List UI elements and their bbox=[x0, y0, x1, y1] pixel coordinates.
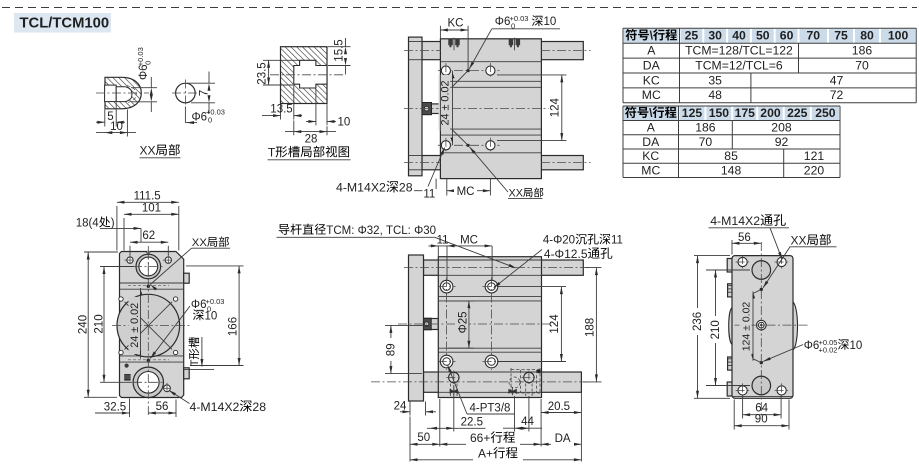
svg-text:Φ6: Φ6 bbox=[192, 111, 208, 123]
svg-text:24 ± 0.02: 24 ± 0.02 bbox=[440, 81, 452, 126]
svg-text:22.5: 22.5 bbox=[461, 416, 483, 428]
svg-text:11: 11 bbox=[611, 235, 623, 247]
svg-text:70: 70 bbox=[855, 58, 869, 72]
svg-text:4-Φ12.5: 4-Φ12.5 bbox=[544, 247, 588, 261]
svg-text:28: 28 bbox=[399, 181, 413, 195]
svg-text:XX: XX bbox=[140, 144, 156, 158]
svg-text:250: 250 bbox=[815, 106, 836, 120]
svg-text:4-M14X2: 4-M14X2 bbox=[336, 181, 386, 195]
svg-text:0: 0 bbox=[208, 116, 212, 125]
svg-text:DA: DA bbox=[642, 135, 660, 149]
svg-text:208: 208 bbox=[771, 121, 792, 135]
svg-text:10: 10 bbox=[338, 117, 351, 129]
svg-text:Φ6: Φ6 bbox=[191, 299, 207, 311]
svg-text:4-M14X2: 4-M14X2 bbox=[710, 214, 760, 228]
svg-text:A+: A+ bbox=[478, 446, 493, 460]
svg-text:18(4: 18(4 bbox=[76, 217, 100, 229]
svg-text:47: 47 bbox=[830, 73, 844, 87]
svg-text:): ) bbox=[111, 217, 115, 229]
svg-text:240: 240 bbox=[77, 315, 89, 334]
svg-text:TCM=128/TCL=122: TCM=128/TCL=122 bbox=[685, 44, 793, 58]
svg-text:200: 200 bbox=[760, 106, 781, 120]
svg-text:10: 10 bbox=[850, 340, 863, 352]
svg-text:101: 101 bbox=[142, 202, 161, 214]
svg-text:A: A bbox=[647, 44, 656, 58]
svg-text:TCM=12/TCL=6: TCM=12/TCL=6 bbox=[695, 58, 783, 72]
svg-text:225: 225 bbox=[787, 106, 808, 120]
svg-text:24: 24 bbox=[394, 400, 407, 412]
svg-text:4-PT3/8: 4-PT3/8 bbox=[470, 402, 511, 414]
svg-text:MC: MC bbox=[460, 235, 478, 247]
svg-text:150: 150 bbox=[709, 106, 730, 120]
svg-text:DA: DA bbox=[643, 58, 661, 72]
svg-text:28: 28 bbox=[252, 400, 266, 414]
svg-text:MC: MC bbox=[457, 186, 475, 198]
svg-text:TCL/TCM100: TCL/TCM100 bbox=[20, 16, 110, 32]
svg-text:10: 10 bbox=[205, 310, 218, 322]
svg-text:24 ± 0.02: 24 ± 0.02 bbox=[129, 303, 141, 348]
svg-text:Φ6: Φ6 bbox=[804, 340, 820, 352]
svg-text:T: T bbox=[189, 359, 201, 366]
svg-text:DA: DA bbox=[555, 433, 571, 445]
svg-text:44: 44 bbox=[521, 416, 534, 428]
svg-text:28: 28 bbox=[305, 133, 318, 145]
svg-text:125: 125 bbox=[682, 106, 703, 120]
svg-text:70: 70 bbox=[699, 135, 713, 149]
svg-text:35: 35 bbox=[708, 73, 722, 87]
svg-text:50: 50 bbox=[417, 432, 430, 444]
svg-text:111.5: 111.5 bbox=[134, 190, 161, 202]
svg-text:XX: XX bbox=[791, 233, 807, 247]
svg-text:T: T bbox=[268, 145, 276, 159]
svg-text:70: 70 bbox=[807, 28, 821, 42]
svg-text:75: 75 bbox=[834, 28, 848, 42]
svg-text:60: 60 bbox=[780, 28, 794, 42]
svg-text:175: 175 bbox=[735, 106, 756, 120]
svg-text:92: 92 bbox=[775, 135, 789, 149]
svg-text:40: 40 bbox=[732, 28, 746, 42]
svg-text:KC: KC bbox=[642, 149, 659, 163]
svg-text:4-Φ20: 4-Φ20 bbox=[543, 235, 575, 247]
svg-text:7: 7 bbox=[199, 90, 211, 96]
svg-text:MC: MC bbox=[642, 88, 661, 102]
svg-text:20.5: 20.5 bbox=[548, 401, 570, 413]
svg-text:90: 90 bbox=[755, 414, 768, 426]
svg-text:11: 11 bbox=[437, 235, 449, 247]
svg-text:XX: XX bbox=[192, 237, 208, 249]
svg-text:56: 56 bbox=[156, 401, 169, 413]
svg-text:186: 186 bbox=[695, 121, 716, 135]
svg-text:210: 210 bbox=[93, 314, 105, 333]
svg-text:32.5: 32.5 bbox=[104, 401, 126, 413]
svg-text:121: 121 bbox=[804, 149, 825, 163]
svg-text:TCM: Φ32, TCL: Φ30: TCM: Φ32, TCL: Φ30 bbox=[326, 225, 436, 237]
svg-text:15.5: 15.5 bbox=[334, 39, 346, 61]
svg-text:56: 56 bbox=[738, 232, 751, 244]
svg-text:124: 124 bbox=[550, 98, 562, 118]
svg-text:124 ± 0.02: 124 ± 0.02 bbox=[741, 302, 753, 352]
svg-text:186: 186 bbox=[852, 44, 873, 58]
svg-text:210: 210 bbox=[710, 320, 722, 339]
svg-text:48: 48 bbox=[708, 88, 722, 102]
svg-text:4-M14X2: 4-M14X2 bbox=[190, 400, 240, 414]
svg-text:62: 62 bbox=[142, 230, 155, 242]
svg-text:25: 25 bbox=[685, 28, 699, 42]
svg-text:148: 148 bbox=[721, 163, 742, 177]
svg-text:23.5: 23.5 bbox=[257, 62, 269, 84]
svg-text:10: 10 bbox=[544, 16, 557, 28]
svg-text:Φ6: Φ6 bbox=[495, 16, 511, 28]
svg-text:66+: 66+ bbox=[470, 431, 490, 445]
svg-text:11: 11 bbox=[423, 188, 435, 200]
svg-text:13.5: 13.5 bbox=[270, 103, 292, 115]
svg-text:89: 89 bbox=[386, 343, 398, 356]
svg-text:124: 124 bbox=[549, 314, 561, 334]
svg-text:+0.02: +0.02 bbox=[819, 345, 838, 354]
svg-text:100: 100 bbox=[888, 28, 909, 42]
svg-text:MC: MC bbox=[641, 163, 660, 177]
svg-text:166: 166 bbox=[227, 317, 239, 336]
svg-text:0: 0 bbox=[144, 61, 153, 65]
svg-text:A: A bbox=[647, 121, 656, 135]
svg-text:KC: KC bbox=[643, 73, 660, 87]
svg-text:72: 72 bbox=[830, 88, 844, 102]
svg-text:XX: XX bbox=[509, 187, 523, 199]
svg-text:Φ25: Φ25 bbox=[458, 311, 470, 333]
svg-text:220: 220 bbox=[804, 163, 825, 177]
svg-text:10: 10 bbox=[110, 121, 123, 133]
svg-text:188: 188 bbox=[585, 318, 597, 337]
svg-text:80: 80 bbox=[860, 28, 874, 42]
svg-text:KC: KC bbox=[448, 18, 464, 30]
svg-text:30: 30 bbox=[708, 28, 722, 42]
svg-text:85: 85 bbox=[724, 149, 738, 163]
svg-text:50: 50 bbox=[756, 28, 770, 42]
svg-text:236: 236 bbox=[692, 312, 704, 331]
